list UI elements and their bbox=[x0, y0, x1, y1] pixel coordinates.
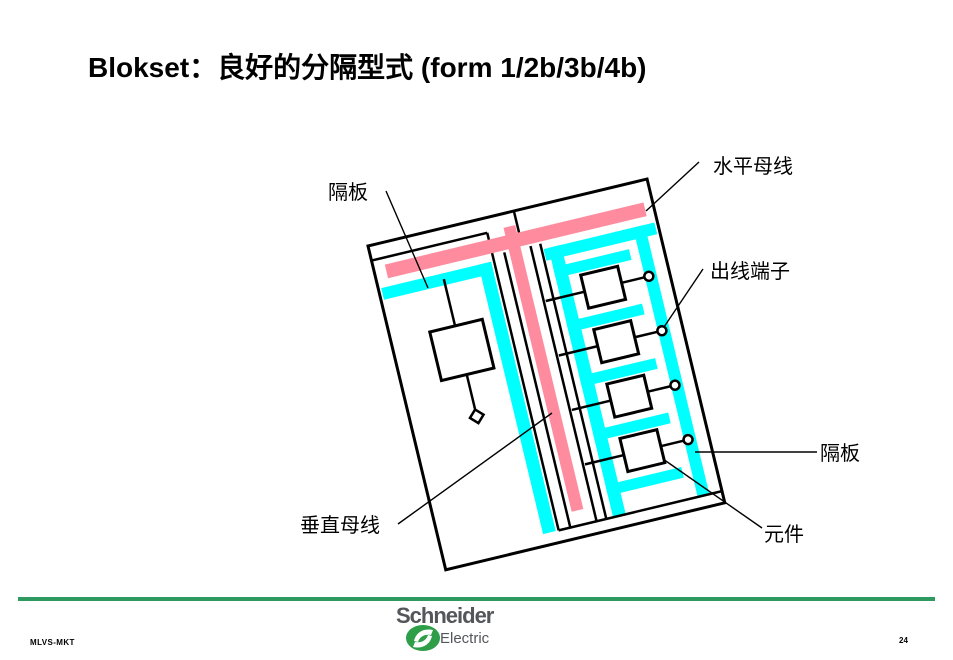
outgoing-terminal bbox=[670, 380, 681, 391]
footer-department: MLVS-MKT bbox=[30, 638, 75, 647]
footer-rule-bar bbox=[18, 597, 935, 601]
cabinet-diagram: 隔板 水平母线 出线端子 隔板 元件 垂直母线 bbox=[0, 0, 953, 660]
label-vertical-busbar: 垂直母线 bbox=[300, 514, 380, 537]
outgoing-terminal bbox=[683, 434, 694, 445]
leader-horizontal-busbar bbox=[646, 162, 699, 211]
left-component-square bbox=[430, 319, 494, 380]
label-partition-right: 隔板 bbox=[820, 442, 860, 465]
outgoing-terminal bbox=[643, 271, 654, 282]
slide: Blokset：良好的分隔型式 (form 1/2b/3b/4b) bbox=[0, 0, 953, 660]
component-square bbox=[581, 266, 626, 308]
label-partition-top: 隔板 bbox=[328, 181, 368, 204]
label-component: 元件 bbox=[764, 523, 804, 546]
logo-ellipse-icon bbox=[406, 625, 440, 651]
footer-rule bbox=[18, 597, 935, 601]
cabinet-group bbox=[368, 179, 725, 570]
label-outgoing-terminals: 出线端子 bbox=[710, 260, 790, 283]
page-number: 24 bbox=[899, 636, 908, 645]
component-square bbox=[594, 321, 639, 363]
component-square bbox=[607, 375, 652, 417]
schneider-electric-logo: Schneider Electric bbox=[390, 602, 520, 654]
component-square bbox=[620, 430, 665, 472]
logo-sub-text: Electric bbox=[440, 630, 490, 647]
label-horizontal-busbar: 水平母线 bbox=[713, 155, 793, 178]
logo-brand-text: Schneider bbox=[396, 603, 495, 628]
outgoing-terminal bbox=[656, 325, 667, 336]
